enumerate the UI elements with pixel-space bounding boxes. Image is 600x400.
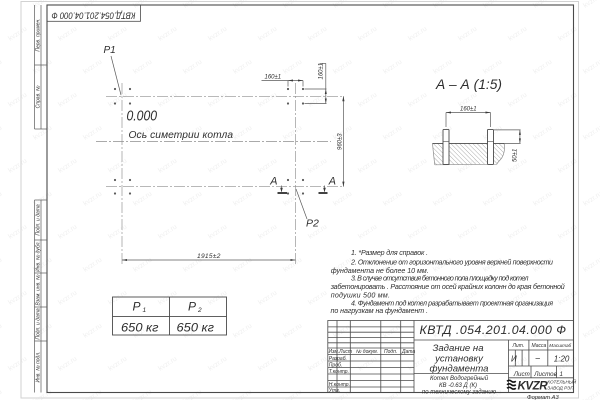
svg-text:Т.контр.: Т.контр. <box>329 369 349 375</box>
svg-text:КВТД .054.201.04.000 Ф: КВТД .054.201.04.000 Ф <box>419 323 566 337</box>
svg-text:Н.контр.: Н.контр. <box>329 382 350 388</box>
svg-text:1915±2: 1915±2 <box>197 253 221 260</box>
svg-text:КВ -0.63 Д (К): КВ -0.63 Д (К) <box>439 383 477 389</box>
svg-text:Изм.Лист: Изм.Лист <box>329 349 353 355</box>
svg-text:Р2: Р2 <box>306 218 319 230</box>
svg-text:№ докум.: № докум. <box>356 349 378 355</box>
svg-text:Взам. инв. №: Взам. инв. № <box>36 274 42 306</box>
svg-text:160±1: 160±1 <box>265 75 282 81</box>
svg-text:Подп.: Подп. <box>384 349 397 355</box>
svg-text:Формат А3: Формат А3 <box>527 395 559 400</box>
svg-text:по техническому заданию: по техническому заданию <box>422 390 497 396</box>
svg-text:А: А <box>328 176 336 188</box>
svg-text:Лист: Лист <box>513 371 530 378</box>
svg-text:Разраб.: Разраб. <box>329 356 347 362</box>
svg-text:Р: Р <box>133 300 141 314</box>
svg-text:Перв. примен.: Перв. примен. <box>36 18 42 51</box>
svg-text:Справ. №: Справ. № <box>36 85 42 108</box>
svg-text:2: 2 <box>197 307 202 314</box>
svg-text:650 кг: 650 кг <box>121 320 159 334</box>
svg-text:Подп. и дата: Подп. и дата <box>36 308 42 340</box>
svg-text:1: 1 <box>143 307 147 314</box>
svg-text:Дата: Дата <box>401 349 415 355</box>
svg-text:160±1: 160±1 <box>460 106 477 112</box>
svg-text:Проб.: Проб. <box>329 362 342 368</box>
svg-text:50±1: 50±1 <box>513 149 519 162</box>
svg-text:Инв. № подл.: Инв. № подл. <box>36 351 42 382</box>
svg-text:1: 1 <box>560 371 563 378</box>
svg-text:Р: Р <box>188 300 196 314</box>
svg-text:Листов: Листов <box>533 371 557 378</box>
svg-text:подушки 500 мм.: подушки 500 мм. <box>331 291 390 299</box>
svg-text:960±3: 960±3 <box>338 133 344 150</box>
svg-text:Подп. и дата: Подп. и дата <box>36 204 42 236</box>
svg-text:1:20: 1:20 <box>554 354 570 363</box>
svg-text:650 кг: 650 кг <box>177 320 215 334</box>
svg-text:Р1: Р1 <box>104 45 116 56</box>
svg-text:ЗАВОД РЭП: ЗАВОД РЭП <box>547 385 574 390</box>
svg-text:Лит.: Лит. <box>512 343 525 349</box>
svg-text:Масштаб: Масштаб <box>549 343 571 348</box>
svg-text:И: И <box>511 354 517 363</box>
svg-text:КОТЕЛЬНЫЙ: КОТЕЛЬНЫЙ <box>547 377 577 384</box>
svg-text:Котел Водогрейный: Котел Водогрейный <box>430 375 489 382</box>
svg-text:забетонировать . Расстояние: забетонировать . Расстояние от осей край… <box>330 283 565 291</box>
svg-text:Утв.: Утв. <box>329 388 340 394</box>
svg-text:по нагрузкам на фундамент .: по нагрузкам на фундамент . <box>331 307 429 315</box>
svg-text:160±1: 160±1 <box>319 63 325 80</box>
svg-text:3. В случае отсутствия бет: 3. В случае отсутствия бетонного пола пл… <box>351 275 529 283</box>
svg-text:–: – <box>535 354 541 363</box>
svg-text:4. Фундамент под котел раз: 4. Фундамент под котел разрабатывает про… <box>351 299 553 307</box>
svg-text:1. *Размер для справок .: 1. *Размер для справок . <box>351 249 428 257</box>
svg-text:КВТД.054.201.04.000 Ф: КВТД.054.201.04.000 Ф <box>52 11 136 21</box>
svg-text:фундамента: фундамента <box>430 363 489 374</box>
svg-text:Инв. № дубл.: Инв. № дубл. <box>36 241 42 272</box>
svg-text:Масса: Масса <box>532 343 547 349</box>
svg-text:KVZR: KVZR <box>518 381 549 393</box>
svg-text:0.000: 0.000 <box>127 107 158 124</box>
svg-text:А: А <box>269 176 277 188</box>
svg-text:Задание на: Задание на <box>432 343 483 354</box>
svg-text:2. Отклонение от горизонтал: 2. Отклонение от горизонтального уровня … <box>350 258 553 266</box>
svg-text:А – А (1:5): А – А (1:5) <box>435 76 502 92</box>
svg-text:Ось симетрии котла: Ось симетрии котла <box>129 130 234 141</box>
